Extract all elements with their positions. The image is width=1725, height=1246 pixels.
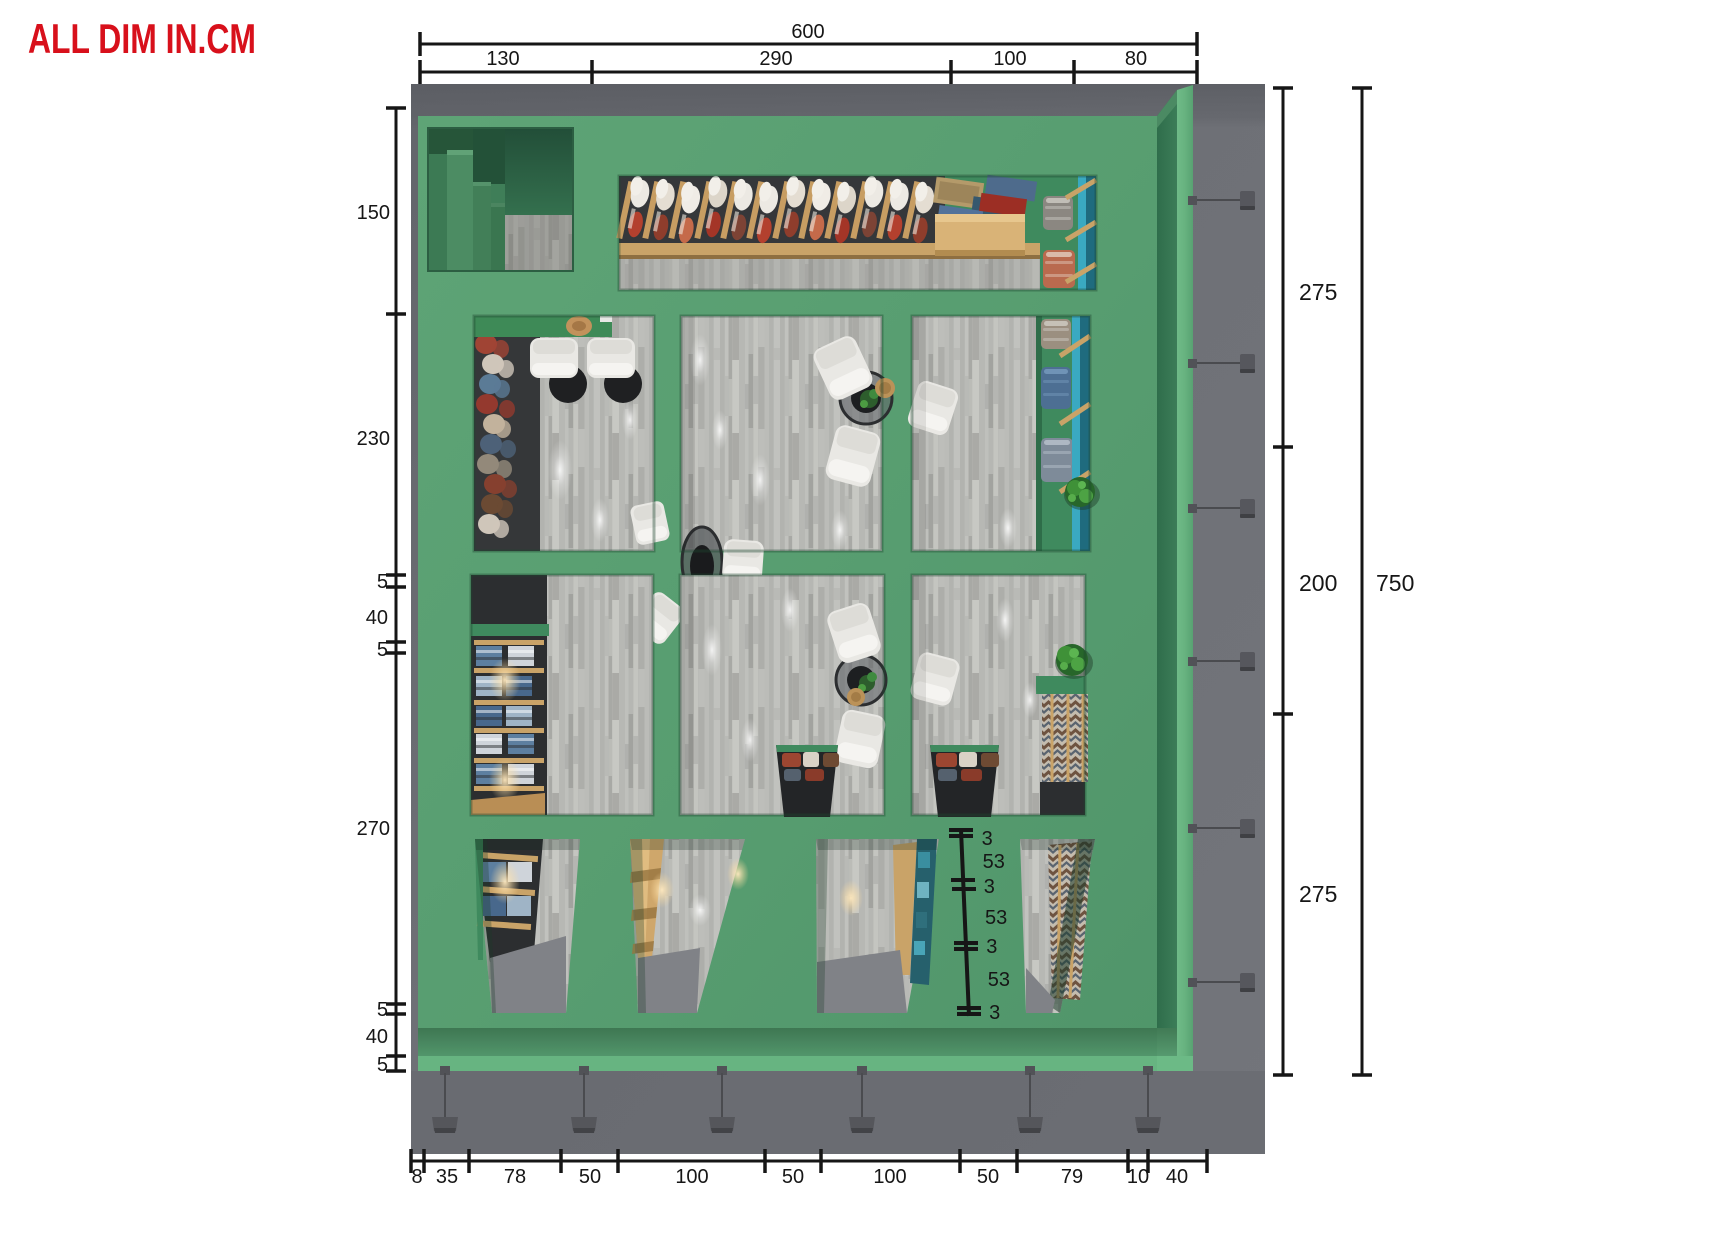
svg-text:79: 79 xyxy=(1061,1166,1083,1188)
svg-text:3: 3 xyxy=(984,876,995,898)
svg-text:40: 40 xyxy=(366,1026,388,1048)
svg-text:275: 275 xyxy=(1299,279,1337,305)
svg-text:80: 80 xyxy=(1125,48,1147,70)
svg-text:40: 40 xyxy=(366,607,388,629)
svg-text:10: 10 xyxy=(1127,1166,1149,1188)
svg-text:230: 230 xyxy=(357,428,390,450)
svg-text:100: 100 xyxy=(873,1166,906,1188)
svg-text:50: 50 xyxy=(977,1166,999,1188)
svg-text:100: 100 xyxy=(675,1166,708,1188)
svg-text:270: 270 xyxy=(357,818,390,840)
svg-text:5: 5 xyxy=(377,999,388,1021)
svg-text:ALL DIM IN.CM: ALL DIM IN.CM xyxy=(28,15,256,62)
svg-text:100: 100 xyxy=(993,48,1026,70)
svg-text:3: 3 xyxy=(982,828,993,850)
svg-text:53: 53 xyxy=(983,851,1005,873)
svg-text:3: 3 xyxy=(989,1002,1000,1024)
svg-text:78: 78 xyxy=(504,1166,526,1188)
svg-text:5: 5 xyxy=(377,571,388,593)
svg-text:50: 50 xyxy=(579,1166,601,1188)
svg-text:130: 130 xyxy=(486,48,519,70)
svg-text:275: 275 xyxy=(1299,881,1337,907)
svg-text:3: 3 xyxy=(986,936,997,958)
svg-text:150: 150 xyxy=(357,202,390,224)
svg-text:200: 200 xyxy=(1299,570,1337,596)
svg-text:35: 35 xyxy=(436,1166,458,1188)
svg-text:600: 600 xyxy=(791,21,824,43)
svg-text:53: 53 xyxy=(988,969,1010,991)
svg-text:53: 53 xyxy=(985,907,1007,929)
svg-text:5: 5 xyxy=(377,639,388,661)
svg-text:5: 5 xyxy=(377,1054,388,1076)
svg-text:50: 50 xyxy=(782,1166,804,1188)
svg-text:8: 8 xyxy=(411,1166,422,1188)
svg-text:40: 40 xyxy=(1166,1166,1188,1188)
svg-text:290: 290 xyxy=(759,48,792,70)
svg-text:750: 750 xyxy=(1376,570,1414,596)
